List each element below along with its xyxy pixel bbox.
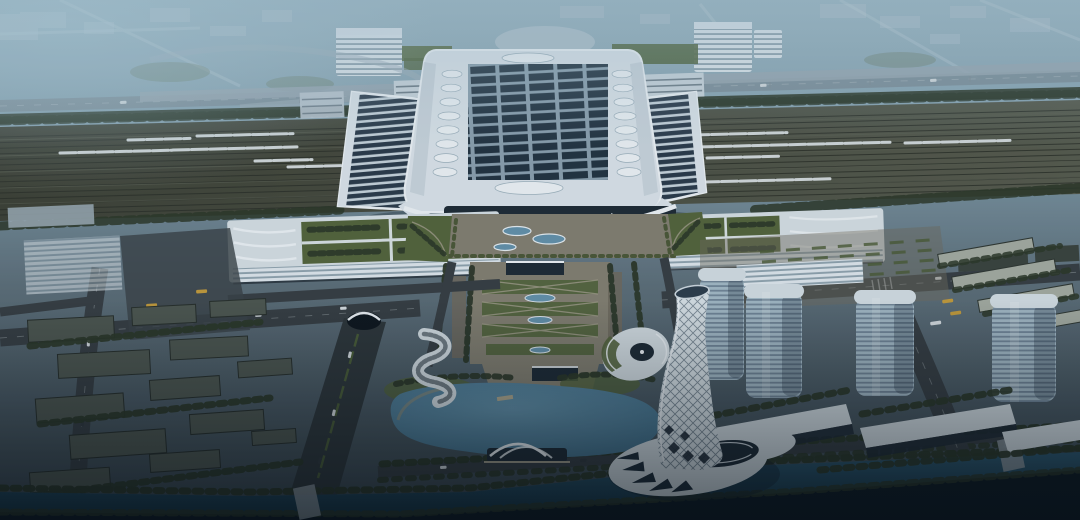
aerial-render: High-speed railway station complex — aer… <box>0 0 1080 520</box>
scene-canvas: High-speed railway station complex — aer… <box>0 0 1080 520</box>
bottom-vignette <box>0 300 1080 520</box>
